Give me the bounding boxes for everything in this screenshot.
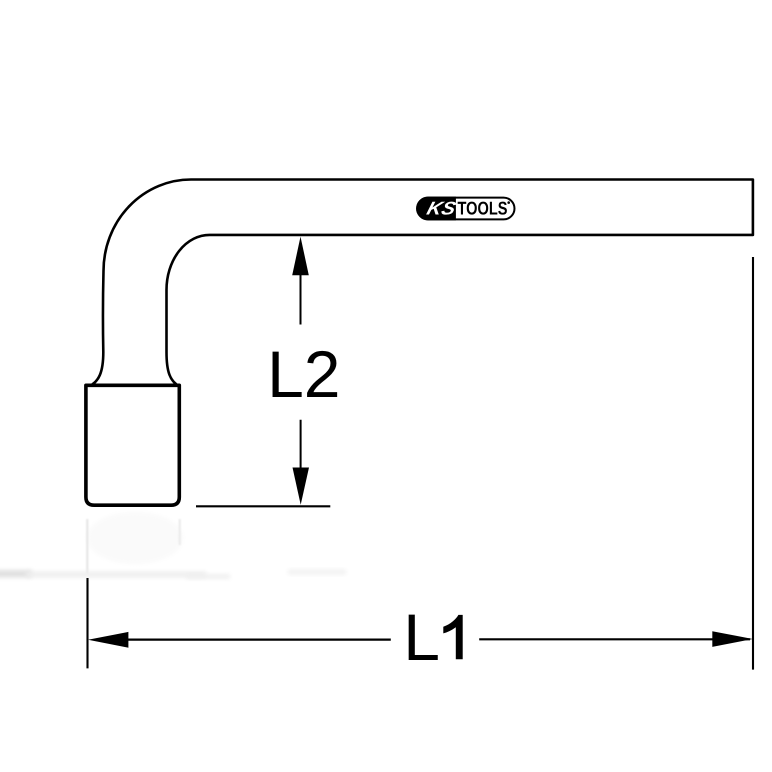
svg-text:L2: L2: [267, 337, 340, 411]
svg-text:TOOLS: TOOLS: [458, 197, 508, 218]
svg-text:L: L: [403, 600, 440, 674]
